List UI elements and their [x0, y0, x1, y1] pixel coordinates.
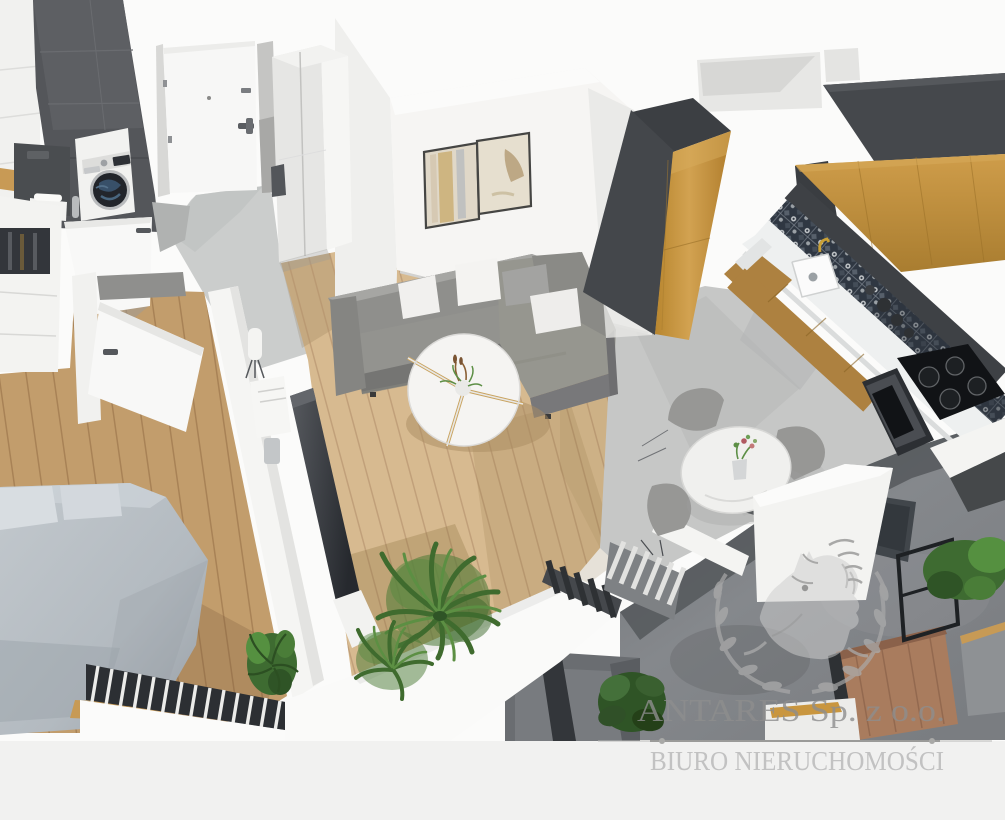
svg-text:ANTARES Sp. z o.o.: ANTARES Sp. z o.o.	[637, 692, 945, 728]
svg-text:BIURO NIERUCHOMOŚCI: BIURO NIERUCHOMOŚCI	[650, 746, 944, 776]
